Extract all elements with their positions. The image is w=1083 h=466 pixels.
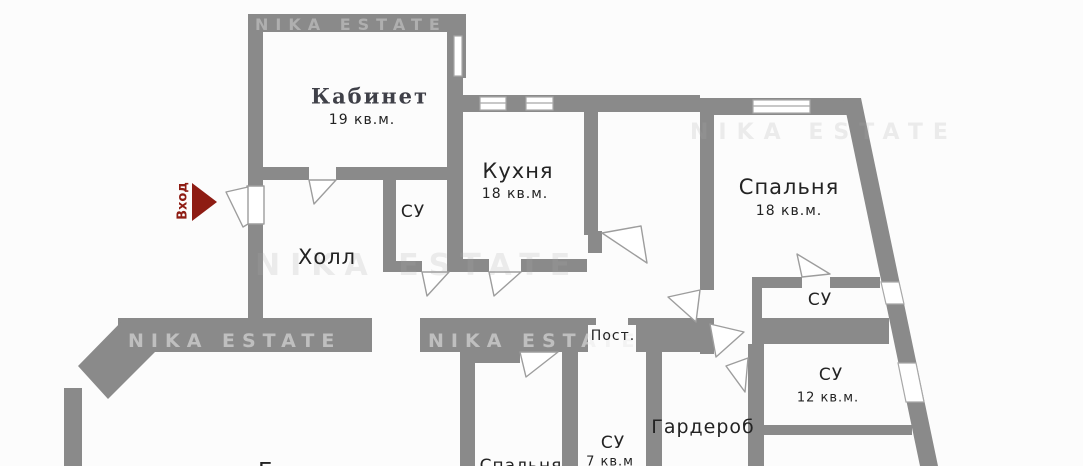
wall <box>752 318 889 344</box>
wall <box>588 318 596 325</box>
room-label-kitchen: Кухня <box>482 159 553 183</box>
room-label-wc-hall: СУ <box>401 202 425 222</box>
room-label-wc-top-right: СУ <box>808 290 832 310</box>
wall <box>383 167 396 272</box>
wall <box>764 425 912 435</box>
room-area-bedroom: 18 кв.м. <box>756 203 822 219</box>
room-area-kitchen: 18 кв.м. <box>482 186 548 202</box>
room-label-bedroom: Спальня <box>739 175 839 199</box>
wall <box>263 167 309 180</box>
wall <box>646 352 662 466</box>
entrance-arrow-icon <box>192 183 217 221</box>
room-label-kabinet: Кабинет <box>311 84 429 109</box>
room-area-wc-bottom: 7 кв.м <box>586 455 634 466</box>
wall <box>64 388 82 466</box>
window <box>898 363 924 402</box>
floor-plan: NIKA ESTATE NIKA ESTATE NIKA ESTATE NIKA… <box>0 0 1083 466</box>
wall <box>463 259 489 272</box>
wall <box>748 344 764 466</box>
door-swing <box>489 272 521 296</box>
room-label-wc-bottom: СУ <box>601 433 625 453</box>
door-swing <box>668 290 700 322</box>
wall <box>420 318 588 352</box>
room-label-hall: Холл <box>298 245 356 269</box>
wall <box>248 14 263 187</box>
room-label-bedroom2-partial: Спальня <box>480 456 563 466</box>
door-swing <box>520 352 558 377</box>
wall <box>636 318 704 352</box>
room-area-kabinet: 19 кв.м. <box>329 112 395 128</box>
wall <box>584 95 598 235</box>
wall <box>700 98 714 290</box>
wall <box>248 222 263 321</box>
room-label-living-partial: Гостиная <box>258 459 378 466</box>
entrance-door-swing <box>226 187 248 227</box>
door-swing <box>422 272 449 296</box>
wall <box>475 352 520 363</box>
wall <box>396 261 422 272</box>
wall <box>521 259 587 272</box>
room-label-wardrobe: Гардероб <box>651 416 755 438</box>
entrance-door-frame <box>247 186 264 224</box>
wall <box>562 352 578 466</box>
door-swing <box>797 254 830 277</box>
floor-plan-drawing <box>0 0 1083 466</box>
entrance-label: Вход <box>176 182 191 220</box>
door-swing <box>710 324 744 357</box>
wall <box>118 318 372 352</box>
door-swing <box>726 358 748 392</box>
wall <box>830 277 880 288</box>
wall <box>588 231 602 253</box>
room-label-wc-right: СУ <box>819 365 843 385</box>
room-area-wc-right: 12 кв.м. <box>797 391 859 406</box>
wall <box>628 318 636 325</box>
door-swing <box>309 180 336 204</box>
window <box>454 36 462 76</box>
window <box>881 282 904 304</box>
door-swing <box>602 226 647 263</box>
wall <box>248 14 466 32</box>
room-label-storage: Пост. <box>591 328 635 344</box>
wall <box>460 352 475 466</box>
